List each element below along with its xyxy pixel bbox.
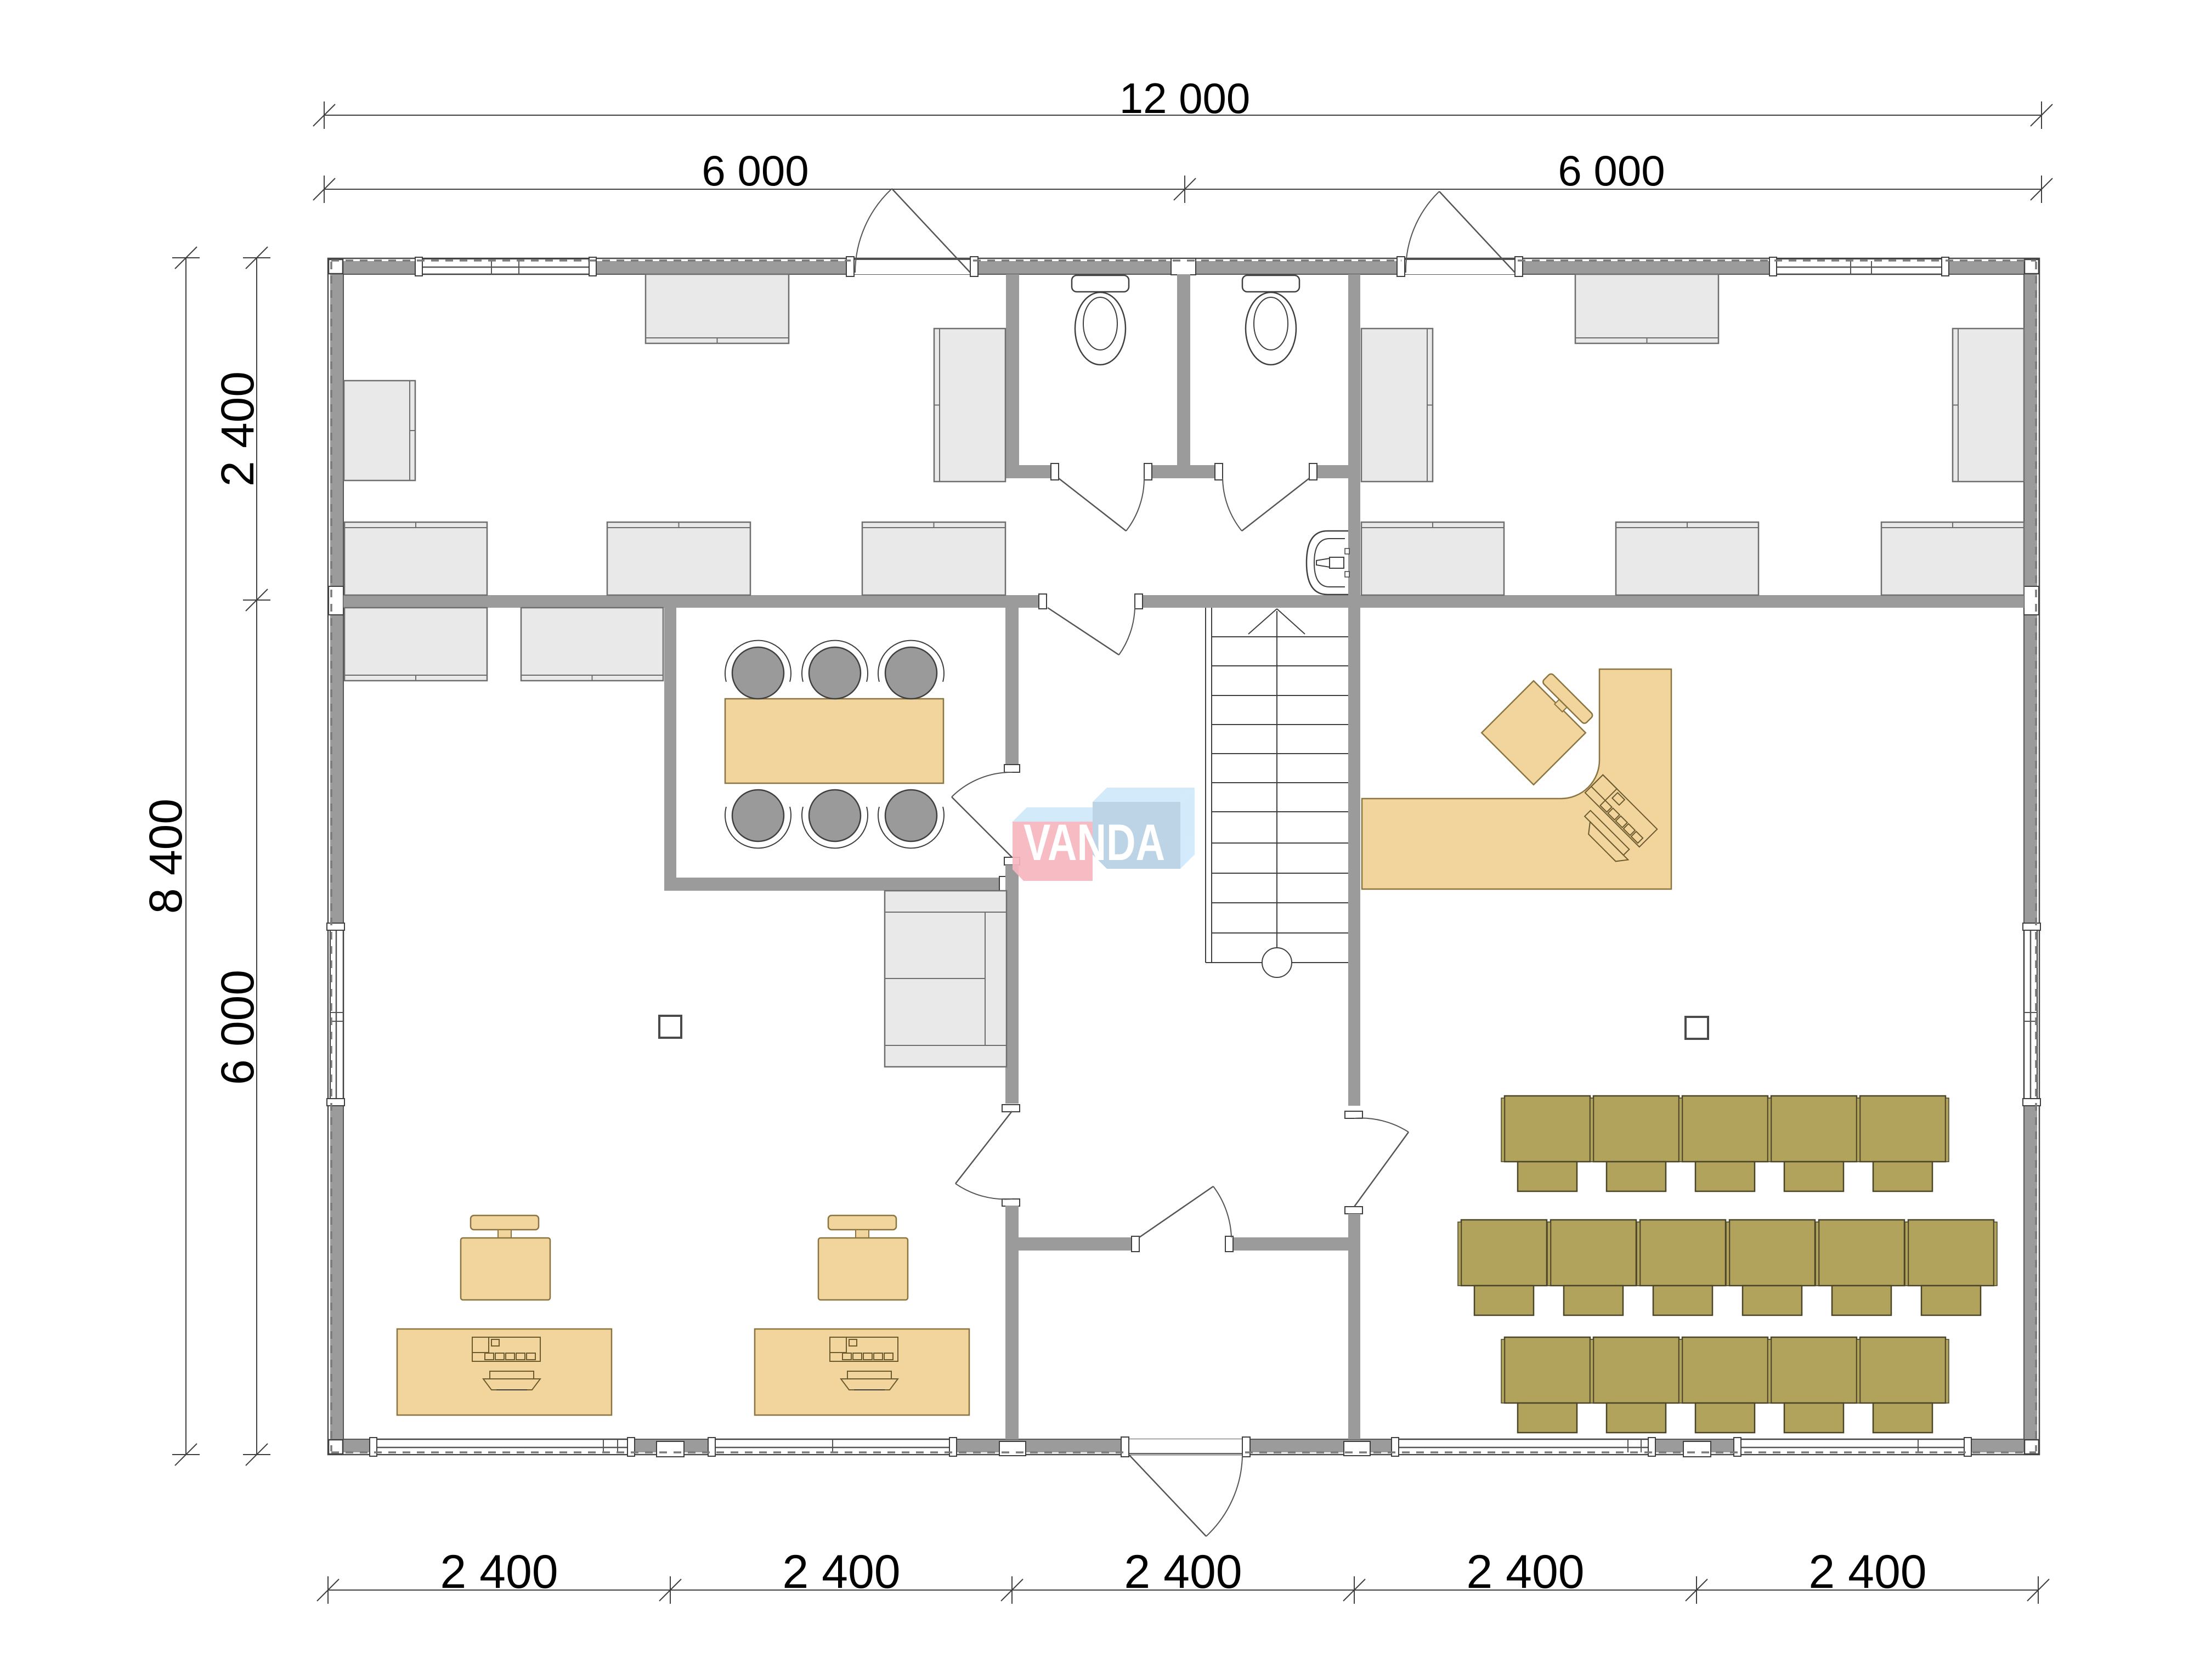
svg-text:12 000: 12 000	[1119, 74, 1251, 122]
svg-text:2 400: 2 400	[440, 1546, 558, 1598]
svg-text:2 400: 2 400	[782, 1546, 900, 1598]
svg-text:6 000: 6 000	[702, 146, 808, 195]
svg-text:2 400: 2 400	[212, 371, 263, 487]
svg-text:2 400: 2 400	[1808, 1546, 1926, 1598]
svg-text:VANDA: VANDA	[1024, 813, 1165, 871]
svg-text:6 000: 6 000	[1558, 146, 1665, 195]
svg-text:6 000: 6 000	[212, 970, 263, 1085]
svg-text:8 400: 8 400	[140, 799, 191, 914]
svg-text:2 400: 2 400	[1466, 1546, 1584, 1598]
svg-text:2 400: 2 400	[1124, 1546, 1242, 1598]
